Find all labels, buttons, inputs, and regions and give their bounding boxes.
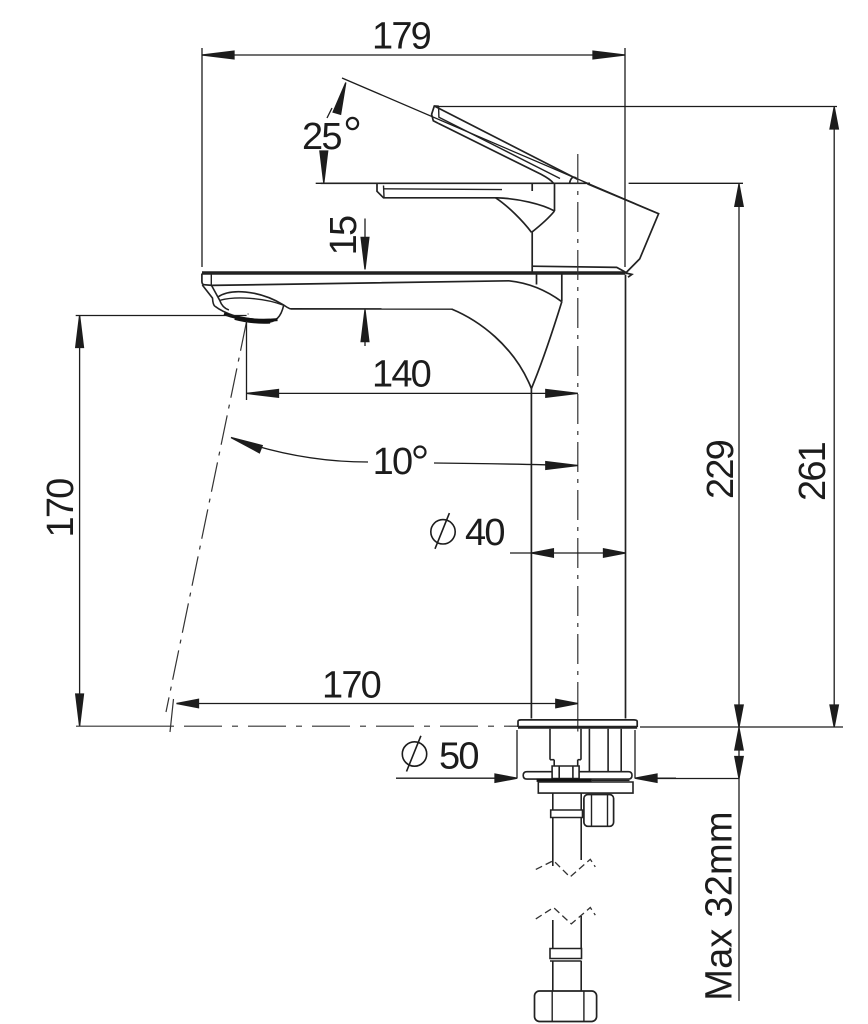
svg-text:50: 50 (439, 736, 478, 778)
svg-text:25: 25 (302, 116, 341, 158)
svg-text:140: 140 (372, 354, 431, 396)
svg-text:229: 229 (700, 440, 742, 499)
svg-text:170: 170 (40, 479, 82, 538)
svg-text:261: 261 (792, 442, 834, 501)
svg-text:10: 10 (373, 441, 412, 483)
svg-text:170: 170 (322, 665, 381, 707)
svg-text:15: 15 (323, 216, 365, 255)
svg-text:40: 40 (465, 512, 504, 554)
svg-text:179: 179 (372, 16, 431, 58)
svg-text:Max 32mm: Max 32mm (699, 811, 741, 1001)
